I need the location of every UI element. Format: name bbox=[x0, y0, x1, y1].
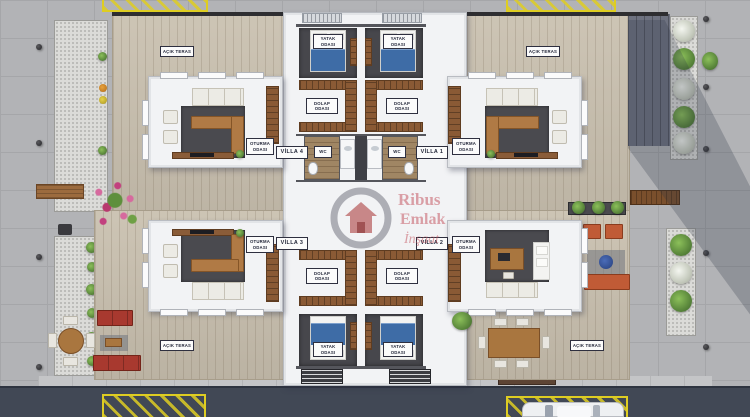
wall bbox=[296, 180, 426, 182]
label-living-villa1: OTURMAODASI bbox=[452, 138, 480, 155]
window bbox=[581, 228, 588, 254]
window bbox=[198, 72, 226, 79]
label-wc-left: WC bbox=[314, 146, 332, 158]
dining-chair bbox=[478, 336, 486, 349]
bush-green bbox=[670, 290, 692, 312]
entry-stairs-left bbox=[301, 369, 343, 384]
dresser bbox=[350, 322, 357, 350]
window bbox=[506, 72, 534, 79]
label-closet-villa4: DOLAPODASI bbox=[306, 98, 338, 114]
bollard bbox=[703, 16, 709, 22]
shrub bbox=[98, 146, 107, 155]
bollard bbox=[703, 250, 709, 256]
sink-basin bbox=[371, 146, 379, 151]
kitchen-counter-villa1 bbox=[448, 86, 461, 144]
label-text: ODASI bbox=[459, 245, 474, 250]
outdoor-sofa-orange bbox=[584, 274, 630, 290]
window bbox=[160, 72, 188, 79]
window bbox=[544, 72, 572, 79]
wall-center bbox=[355, 136, 367, 180]
bush-white bbox=[673, 132, 695, 154]
window bbox=[236, 309, 264, 316]
window bbox=[142, 100, 149, 126]
tv-screen bbox=[190, 230, 214, 234]
dresser bbox=[365, 322, 372, 350]
window bbox=[198, 309, 226, 316]
window bbox=[142, 228, 149, 254]
entry-stairs-right bbox=[389, 369, 431, 384]
dining-chair bbox=[63, 357, 78, 366]
label-text: ODASI bbox=[395, 276, 410, 281]
l-sofa-villa3 bbox=[191, 259, 239, 272]
dining-chair bbox=[63, 316, 78, 325]
label-villa3: VİLLA 3 bbox=[276, 237, 308, 250]
deck-shaded-right bbox=[628, 14, 670, 146]
label-text: AÇIK TERAS bbox=[573, 343, 601, 348]
toilet bbox=[308, 162, 318, 175]
small-side-table bbox=[58, 224, 72, 235]
watermark-brand-line1: Ribus bbox=[398, 190, 441, 210]
dining-chair bbox=[86, 333, 95, 348]
label-living-villa3: OTURMAODASI bbox=[246, 236, 274, 253]
window bbox=[142, 134, 149, 160]
label-bedroom-villa4: YATAKODASI bbox=[313, 34, 343, 49]
pergola-beam bbox=[630, 190, 680, 205]
label-text: ODASI bbox=[253, 245, 268, 250]
parking-spot-bottom-left bbox=[102, 394, 206, 417]
pillow bbox=[536, 258, 548, 267]
dining-chair bbox=[516, 318, 529, 326]
label-bedroom-villa1: YATAKODASI bbox=[383, 34, 413, 49]
watermark-brand-line3: İnşaat bbox=[404, 232, 439, 248]
bollard bbox=[36, 364, 42, 370]
palm-plant bbox=[452, 312, 472, 330]
white-sofa-villa1 bbox=[486, 88, 538, 106]
window bbox=[581, 134, 588, 160]
armchair bbox=[163, 244, 178, 258]
laptop bbox=[498, 253, 510, 261]
houseplant bbox=[487, 150, 495, 158]
label-closet-villa3: DOLAPODASI bbox=[306, 268, 338, 284]
dining-chair bbox=[494, 360, 507, 368]
sink-counter bbox=[367, 139, 382, 169]
label-bedroom-villa2: YATAKODASI bbox=[383, 342, 413, 357]
label-text: ODASI bbox=[315, 106, 330, 111]
wood-bench bbox=[36, 184, 84, 199]
site-plan-render: AÇIK TERAS AÇIK TERAS AÇIK TERAS AÇIK TE… bbox=[0, 0, 750, 417]
bush-green bbox=[673, 106, 695, 128]
label-text: ODASI bbox=[391, 42, 406, 47]
shrub bbox=[98, 52, 107, 61]
wardrobe bbox=[345, 80, 357, 132]
houseplant bbox=[236, 229, 244, 237]
sink-counter bbox=[340, 139, 355, 169]
car bbox=[522, 402, 624, 417]
armchair bbox=[163, 264, 178, 278]
label-text: ODASI bbox=[459, 147, 474, 152]
window bbox=[142, 262, 149, 288]
parking-spot-top-left bbox=[102, 0, 208, 12]
label-text: ODASI bbox=[253, 147, 268, 152]
flower-orange bbox=[99, 84, 107, 92]
toilet bbox=[404, 162, 414, 175]
parking-spot-top-right bbox=[506, 0, 616, 12]
blue-coffee-table bbox=[599, 255, 613, 269]
label-open-terrace-br: AÇIK TERAS bbox=[570, 340, 604, 351]
window bbox=[506, 309, 534, 316]
white-sofa-villa2 bbox=[486, 282, 538, 298]
label-text: ODASI bbox=[321, 350, 336, 355]
label-living-villa4: OTURMAODASI bbox=[246, 138, 274, 155]
boundary-wall-top-right bbox=[450, 12, 668, 16]
dining-chair bbox=[542, 336, 550, 349]
houseplant bbox=[236, 150, 244, 158]
l-sofa-villa4 bbox=[231, 116, 244, 154]
bollard bbox=[36, 254, 42, 260]
planter-green bbox=[572, 201, 585, 214]
label-text: ODASI bbox=[315, 276, 330, 281]
window bbox=[160, 309, 188, 316]
tv-screen bbox=[190, 153, 214, 157]
bush-white bbox=[673, 78, 695, 100]
label-open-terrace-tr: AÇIK TERAS bbox=[526, 46, 560, 57]
ac-unit-left bbox=[302, 13, 342, 23]
kitchen-counter-villa4 bbox=[266, 86, 279, 144]
sink-basin bbox=[344, 146, 352, 151]
dining-chair bbox=[494, 318, 507, 326]
label-text: AÇIK TERAS bbox=[163, 49, 191, 54]
bollard bbox=[703, 146, 709, 152]
wardrobe bbox=[365, 80, 377, 132]
flower-yellow bbox=[99, 96, 107, 104]
outdoor-dining-table bbox=[488, 328, 540, 358]
ac-unit-right bbox=[382, 13, 422, 23]
gravel-bed-left-bottom bbox=[54, 236, 96, 376]
outdoor-red-sofa bbox=[97, 310, 133, 326]
label-text: ODASI bbox=[395, 106, 410, 111]
bed-blanket bbox=[311, 49, 345, 71]
car-rear-window bbox=[593, 405, 600, 417]
wardrobe bbox=[365, 250, 377, 306]
watermark-logo-icon bbox=[329, 186, 393, 250]
label-text: VİLLA 4 bbox=[281, 149, 304, 155]
armchair bbox=[552, 110, 567, 124]
boundary-wall-top-left bbox=[112, 12, 300, 16]
label-text: WC bbox=[393, 149, 401, 154]
label-text: ODASI bbox=[321, 42, 336, 47]
bush-green bbox=[673, 48, 695, 70]
dresser bbox=[350, 38, 357, 66]
bush-white bbox=[670, 262, 692, 284]
desk-chair bbox=[503, 272, 514, 279]
dresser bbox=[365, 38, 372, 66]
label-text: AÇIK TERAS bbox=[529, 49, 557, 54]
round-dining-table bbox=[58, 328, 84, 354]
label-open-terrace-bl: AÇIK TERAS bbox=[160, 340, 194, 351]
planter-green bbox=[592, 201, 605, 214]
armchair bbox=[163, 110, 178, 124]
car-roof bbox=[557, 406, 591, 417]
white-sofa-villa3 bbox=[192, 282, 244, 300]
label-text: VİLLA 1 bbox=[421, 149, 444, 155]
outdoor-red-sofa bbox=[93, 355, 141, 371]
bollard bbox=[36, 44, 42, 50]
bollard bbox=[36, 140, 42, 146]
label-closet-villa2: DOLAPODASI bbox=[386, 268, 418, 284]
pink-flower-bushes bbox=[88, 176, 142, 230]
white-sofa-villa4 bbox=[192, 88, 244, 106]
plant-right-pavement bbox=[702, 52, 718, 70]
label-open-terrace-tl: AÇIK TERAS bbox=[160, 46, 194, 57]
label-text: AÇIK TERAS bbox=[163, 343, 191, 348]
dining-chair bbox=[48, 333, 57, 348]
wall-top bbox=[296, 24, 426, 27]
car-windshield bbox=[545, 405, 553, 417]
label-villa4: VİLLA 4 bbox=[276, 146, 308, 159]
window bbox=[544, 309, 572, 316]
label-bedroom-villa3: YATAKODASI bbox=[313, 342, 343, 357]
armchair bbox=[163, 130, 178, 144]
dining-chair bbox=[516, 360, 529, 368]
outdoor-armchair-orange bbox=[605, 224, 623, 239]
window bbox=[236, 72, 264, 79]
coffee-table bbox=[105, 338, 122, 347]
bush-green bbox=[670, 234, 692, 256]
label-living-villa2: OTURMAODASI bbox=[452, 236, 480, 253]
planter-green bbox=[611, 201, 624, 214]
window bbox=[468, 72, 496, 79]
bed-blanket bbox=[381, 49, 415, 71]
label-closet-villa1: DOLAPODASI bbox=[386, 98, 418, 114]
bush-white bbox=[673, 20, 695, 42]
bollard bbox=[703, 84, 709, 90]
label-wc-right: WC bbox=[388, 146, 406, 158]
label-text: WC bbox=[319, 149, 327, 154]
label-text: ODASI bbox=[391, 350, 406, 355]
tv-screen bbox=[514, 153, 538, 157]
window bbox=[581, 262, 588, 288]
watermark-brand-line2: Emlak bbox=[400, 211, 445, 229]
pillow bbox=[536, 246, 548, 255]
label-villa1: VİLLA 1 bbox=[416, 146, 448, 159]
armchair bbox=[552, 130, 567, 144]
chaise-villa2 bbox=[533, 242, 550, 280]
label-text: VİLLA 3 bbox=[281, 240, 304, 246]
window bbox=[468, 309, 496, 316]
wardrobe bbox=[345, 250, 357, 306]
window bbox=[581, 100, 588, 126]
bollard bbox=[703, 344, 709, 350]
l-sofa-villa1 bbox=[486, 116, 499, 154]
